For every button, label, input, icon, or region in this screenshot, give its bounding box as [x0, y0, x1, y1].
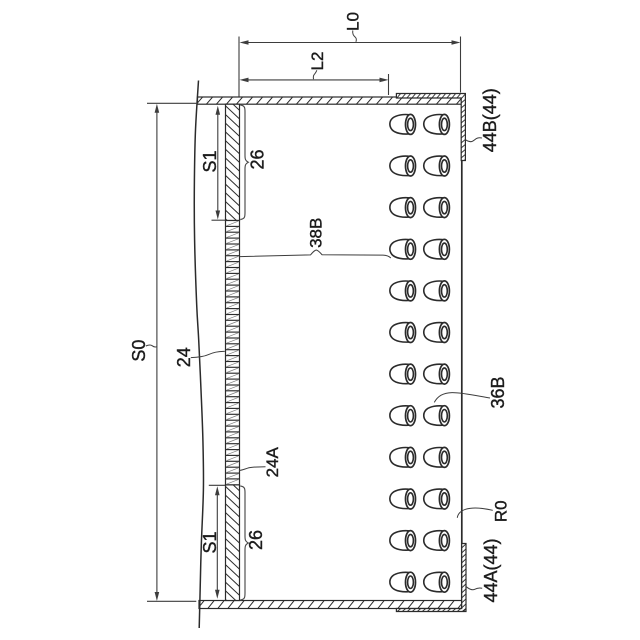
svg-text:24A: 24A [263, 447, 282, 478]
svg-text:S1: S1 [200, 531, 220, 553]
svg-text:24: 24 [174, 347, 194, 367]
svg-text:36B: 36B [488, 376, 508, 408]
svg-text:38B: 38B [307, 218, 326, 248]
svg-text:44B(44): 44B(44) [480, 88, 500, 152]
svg-text:26: 26 [246, 530, 266, 550]
svg-text:L2: L2 [308, 52, 327, 71]
svg-text:S1: S1 [200, 150, 220, 172]
svg-text:R0: R0 [492, 500, 511, 522]
svg-text:26: 26 [248, 149, 268, 169]
svg-text:L0: L0 [344, 12, 363, 31]
svg-text:S0: S0 [129, 340, 149, 362]
svg-text:44A(44): 44A(44) [481, 538, 501, 602]
